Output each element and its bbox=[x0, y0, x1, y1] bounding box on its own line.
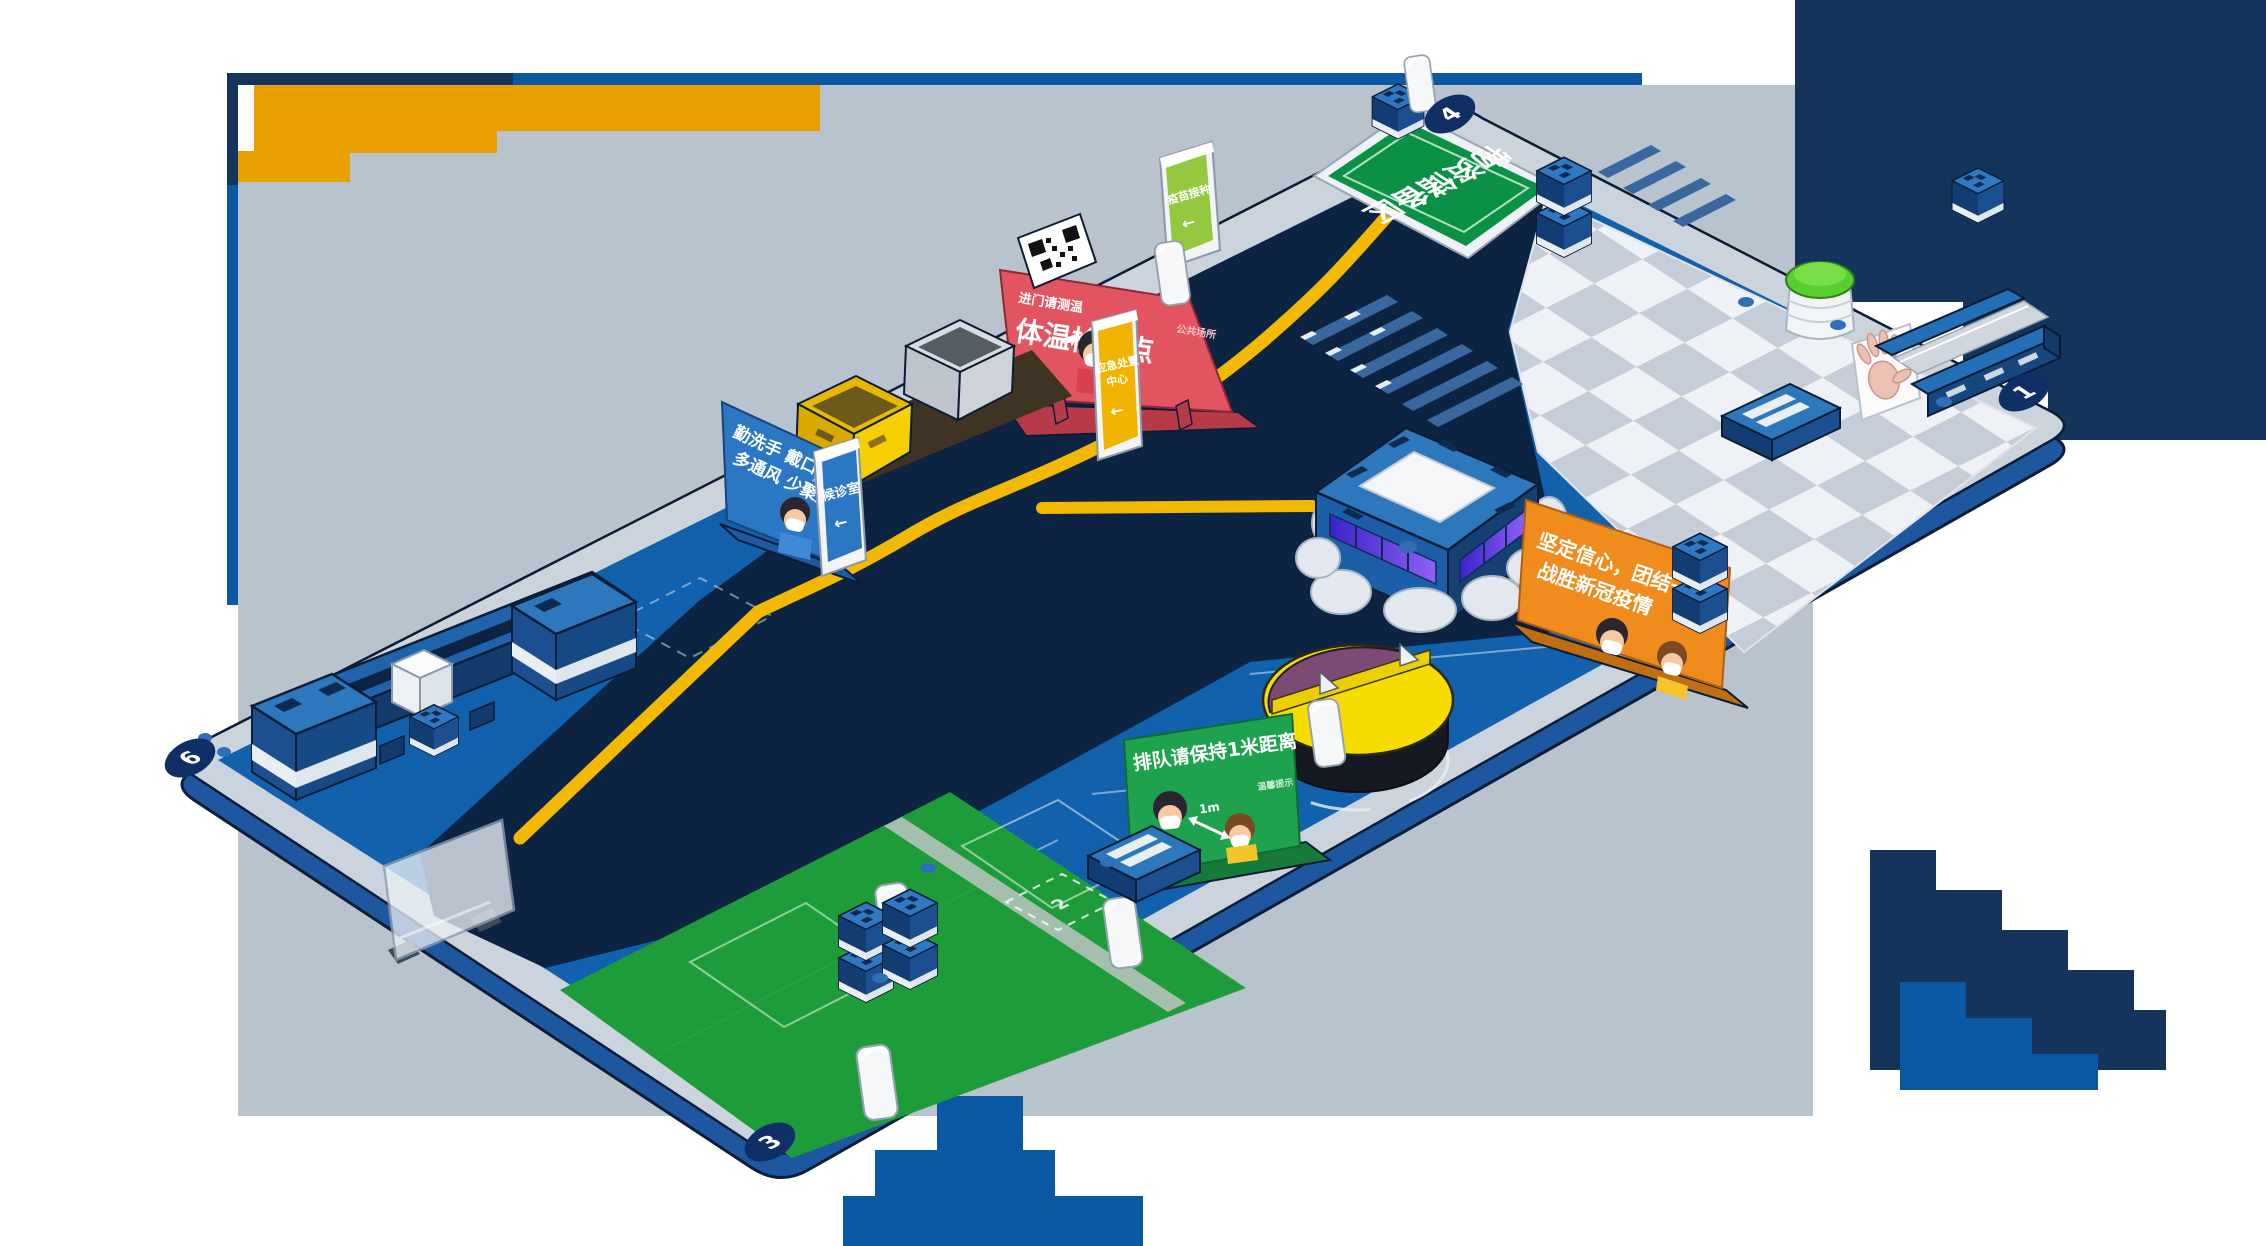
mat-dot bbox=[1100, 857, 1116, 867]
emergency-center-sign: 应急处置 中心 ← bbox=[1092, 310, 1142, 460]
mat-dot bbox=[1936, 397, 1952, 407]
robot-cube bbox=[410, 705, 458, 756]
waiting-room-sign: 候诊室 ← bbox=[814, 438, 866, 576]
mat-dot bbox=[920, 863, 936, 873]
top-blue-bar bbox=[513, 73, 1642, 85]
robot-cube bbox=[883, 889, 937, 947]
robot-cube bbox=[1953, 168, 2004, 222]
mat-dot bbox=[217, 747, 231, 757]
isometric-field-map: 2 物资储备区 疫苗接种 ← 进门请测温 体温检测点 公共场所 bbox=[0, 0, 2266, 1246]
robot-cube bbox=[1673, 533, 1727, 591]
machine-white-box bbox=[392, 650, 452, 716]
robot-cube bbox=[1537, 157, 1591, 215]
mat-dot bbox=[872, 973, 888, 983]
mat-dot bbox=[1830, 320, 1846, 330]
distance-label: 1m bbox=[1198, 800, 1221, 817]
mat-dot bbox=[1738, 297, 1754, 307]
mat-dot bbox=[1399, 541, 1417, 553]
top-navy-bar bbox=[227, 73, 513, 85]
